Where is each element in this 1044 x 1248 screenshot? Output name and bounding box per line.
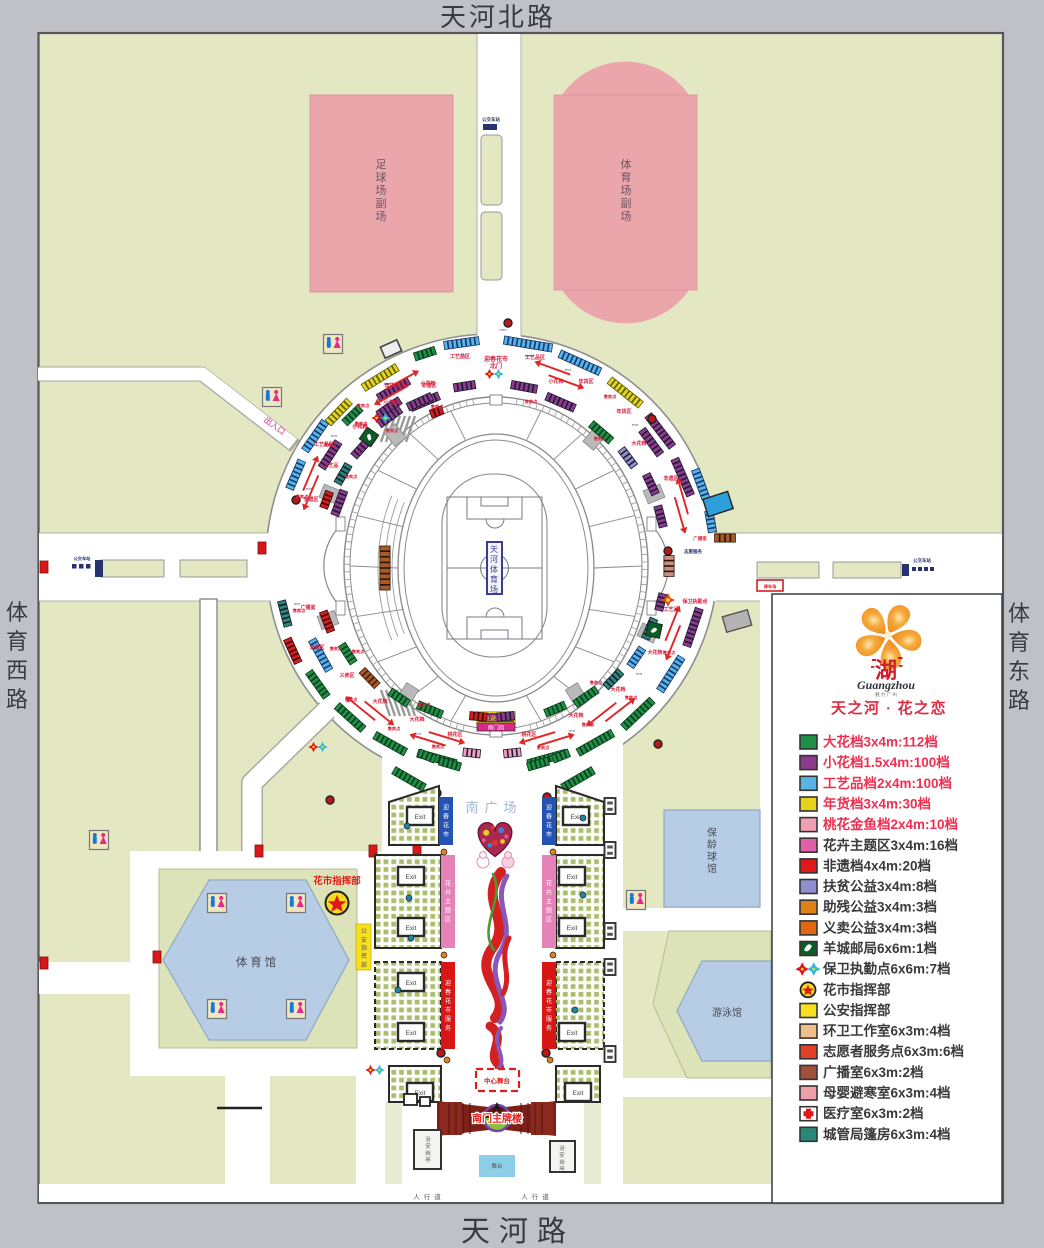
svg-text:体: 体 <box>621 157 632 171</box>
svg-text:亭: 亭 <box>425 1156 431 1164</box>
svg-text:售卖点: 售卖点 <box>590 679 603 686</box>
svg-text:路: 路 <box>1008 688 1030 713</box>
svg-text:大花档: 大花档 <box>647 649 662 656</box>
svg-text:大花档: 大花档 <box>610 686 625 693</box>
svg-text:花: 花 <box>546 997 552 1005</box>
svg-text:公交车站: 公交车站 <box>74 555 92 562</box>
svg-text:▪▪▪▪▪▪: ▪▪▪▪▪▪ <box>499 328 506 332</box>
svg-text:大花档: 大花档 <box>409 716 424 723</box>
svg-text:广播室6x3m:2档: 广播室6x3m:2档 <box>823 1064 924 1080</box>
svg-text:售卖点: 售卖点 <box>388 725 401 732</box>
svg-text:大花档: 大花档 <box>372 698 387 705</box>
svg-text:足: 足 <box>376 159 387 171</box>
svg-text:Exit: Exit <box>406 980 417 987</box>
svg-text:售卖点: 售卖点 <box>296 493 309 500</box>
svg-text:主: 主 <box>445 898 451 906</box>
svg-text:▪▪▪▪▪: ▪▪▪▪▪ <box>294 602 300 606</box>
svg-text:花: 花 <box>443 822 449 830</box>
svg-text:务: 务 <box>546 1024 552 1032</box>
svg-text:售卖点: 售卖点 <box>397 381 410 388</box>
svg-text:保: 保 <box>707 826 717 839</box>
svg-text:Exit: Exit <box>406 925 417 932</box>
svg-text:区: 区 <box>546 917 552 924</box>
svg-text:迎: 迎 <box>546 804 552 812</box>
svg-text:挥: 挥 <box>361 952 367 960</box>
svg-text:售卖点: 售卖点 <box>663 649 676 656</box>
svg-text:售卖点: 售卖点 <box>432 743 445 750</box>
svg-text:年货区: 年货区 <box>578 378 593 385</box>
svg-text:春: 春 <box>546 813 552 821</box>
svg-text:大花档3x4m:112档: 大花档3x4m:112档 <box>823 734 938 750</box>
svg-text:非遗区: 非遗区 <box>309 644 324 651</box>
svg-text:▪▪▪▪▪: ▪▪▪▪▪ <box>331 434 337 438</box>
svg-text:工艺品档2x4m:100档: 工艺品档2x4m:100档 <box>823 775 952 791</box>
svg-text:环卫工作室6x3m:4档: 环卫工作室6x3m:4档 <box>823 1023 951 1039</box>
svg-text:南广场: 南广场 <box>465 800 522 815</box>
svg-text:义卖公益3x4m:3档: 义卖公益3x4m:3档 <box>823 919 937 935</box>
svg-text:大花档: 大花档 <box>568 712 583 719</box>
svg-text:广播室: 广播室 <box>693 535 707 542</box>
svg-text:天: 天 <box>490 545 498 554</box>
svg-text:育: 育 <box>621 170 632 184</box>
svg-text:岗: 岗 <box>425 1150 431 1157</box>
svg-text:龄: 龄 <box>707 838 717 851</box>
svg-text:区: 区 <box>445 917 451 924</box>
svg-text:市: 市 <box>443 831 449 839</box>
svg-text:Guangzhou: Guangzhou <box>857 678 915 692</box>
svg-text:天河北路: 天河北路 <box>440 3 556 32</box>
svg-text:场: 场 <box>376 183 387 197</box>
svg-text:Exit: Exit <box>567 874 578 881</box>
svg-text:育: 育 <box>490 574 498 584</box>
svg-text:售卖点: 售卖点 <box>418 701 431 708</box>
svg-text:售卖点: 售卖点 <box>525 398 538 405</box>
svg-text:天河路: 天河路 <box>461 1215 575 1248</box>
svg-text:▪▪▪▪▪: ▪▪▪▪▪ <box>569 729 575 733</box>
svg-text:售卖点: 售卖点 <box>330 645 343 652</box>
svg-text:▪▪▪▪▪: ▪▪▪▪▪ <box>636 672 642 676</box>
svg-text:售卖点: 售卖点 <box>386 427 399 434</box>
svg-text:Exit: Exit <box>567 1030 578 1037</box>
svg-text:场: 场 <box>621 183 632 197</box>
svg-text:Exit: Exit <box>415 814 426 821</box>
svg-text:中心舞台: 中心舞台 <box>484 1076 511 1085</box>
svg-text:城管局篷房6x3m:4档: 城管局篷房6x3m:4档 <box>823 1126 951 1142</box>
svg-text:育: 育 <box>1008 630 1030 655</box>
svg-text:桃花区: 桃花区 <box>447 731 462 738</box>
svg-text:售卖点: 售卖点 <box>594 435 607 442</box>
svg-text:公: 公 <box>361 928 367 935</box>
svg-text:公交车站: 公交车站 <box>913 557 931 564</box>
svg-text:魅 力 广 州: 魅 力 广 州 <box>875 691 897 698</box>
svg-text:市: 市 <box>546 1006 552 1014</box>
svg-text:售卖点: 售卖点 <box>625 694 638 701</box>
svg-text:桃花区: 桃花区 <box>521 731 536 738</box>
svg-text:年货区: 年货区 <box>616 408 631 415</box>
svg-text:Exit: Exit <box>406 874 417 881</box>
svg-text:迎春花市: 迎春花市 <box>484 355 508 363</box>
svg-text:春: 春 <box>546 988 552 996</box>
svg-text:▪▪▪▪▪: ▪▪▪▪▪ <box>565 368 571 372</box>
svg-text:场: 场 <box>376 209 387 223</box>
svg-text:志愿者服务点6x3m:6档: 志愿者服务点6x3m:6档 <box>823 1043 964 1059</box>
svg-text:保卫执勤点6x6m:7档: 保卫执勤点6x6m:7档 <box>822 961 951 977</box>
svg-text:安: 安 <box>425 1142 431 1150</box>
svg-text:亭: 亭 <box>559 1165 565 1173</box>
svg-text:小花档: 小花档 <box>548 378 563 385</box>
svg-text:育: 育 <box>6 629 28 654</box>
svg-text:路: 路 <box>6 687 28 712</box>
svg-text:志愿服务: 志愿服务 <box>684 548 702 555</box>
svg-text:▪▪▪▪▪: ▪▪▪▪▪ <box>306 487 312 491</box>
svg-text:安: 安 <box>361 936 367 944</box>
svg-text:南门主牌楼: 南门主牌楼 <box>472 1112 522 1125</box>
svg-text:母婴避寒室6x3m:4档: 母婴避寒室6x3m:4档 <box>823 1085 951 1101</box>
svg-text:指: 指 <box>361 944 367 952</box>
svg-text:卉: 卉 <box>546 889 552 897</box>
svg-text:工艺品: 工艺品 <box>663 606 678 613</box>
svg-text:售卖点: 售卖点 <box>324 441 337 448</box>
svg-text:春: 春 <box>443 813 449 821</box>
svg-text:体 育 馆: 体 育 馆 <box>236 955 276 969</box>
svg-text:售卖点: 售卖点 <box>293 607 306 614</box>
svg-text:售卖点: 售卖点 <box>357 402 370 409</box>
svg-text:助残公益3x4m:3档: 助残公益3x4m:3档 <box>823 899 937 915</box>
svg-text:题: 题 <box>546 908 552 915</box>
svg-text:售卖点: 售卖点 <box>431 403 444 410</box>
svg-text:球: 球 <box>376 170 387 184</box>
svg-text:售卖点: 售卖点 <box>345 696 358 703</box>
svg-text:▪▪▪▪▪: ▪▪▪▪▪ <box>460 353 466 357</box>
svg-text:治: 治 <box>559 1144 565 1152</box>
svg-text:小花档1.5x4m:100档: 小花档1.5x4m:100档 <box>823 754 950 770</box>
svg-text:题: 题 <box>445 908 451 915</box>
svg-text:春: 春 <box>445 988 451 996</box>
svg-text:花卉主题区3x4m:16档: 花卉主题区3x4m:16档 <box>823 837 958 853</box>
svg-text:体: 体 <box>6 600 28 625</box>
svg-text:售卖点: 售卖点 <box>352 648 365 655</box>
svg-text:花: 花 <box>445 880 451 888</box>
svg-text:体: 体 <box>1008 601 1030 626</box>
svg-text:年货档3x4m:30档: 年货档3x4m:30档 <box>823 796 931 812</box>
svg-text:北门: 北门 <box>490 362 502 370</box>
svg-text:人行道: 人行道 <box>521 1192 553 1201</box>
svg-text:人行道: 人行道 <box>413 1192 445 1201</box>
svg-text:售卖点: 售卖点 <box>582 721 595 728</box>
svg-text:副: 副 <box>621 197 632 210</box>
svg-text:Exit: Exit <box>573 1090 584 1097</box>
svg-text:市: 市 <box>546 831 552 839</box>
svg-text:售卖点: 售卖点 <box>345 473 358 480</box>
svg-text:非遗档4x4m:20档: 非遗档4x4m:20档 <box>823 857 931 873</box>
svg-text:服: 服 <box>445 1016 451 1023</box>
svg-text:卉: 卉 <box>445 889 451 897</box>
svg-text:公安指挥部: 公安指挥部 <box>823 1002 891 1018</box>
svg-text:治: 治 <box>425 1135 431 1143</box>
svg-text:迎: 迎 <box>546 979 552 987</box>
svg-text:Exit: Exit <box>567 925 578 932</box>
svg-text:岗: 岗 <box>559 1159 565 1166</box>
svg-text:非遗区: 非遗区 <box>421 382 436 389</box>
svg-text:体: 体 <box>490 564 498 574</box>
svg-text:Exit: Exit <box>406 1030 417 1037</box>
svg-text:花: 花 <box>546 822 552 830</box>
svg-text:花市指挥部: 花市指挥部 <box>823 981 891 997</box>
svg-text:▪▪▪▪▪: ▪▪▪▪▪ <box>384 382 390 386</box>
svg-text:小花档: 小花档 <box>383 399 398 406</box>
svg-text:馆: 馆 <box>707 862 717 875</box>
svg-text:场: 场 <box>621 209 632 223</box>
svg-text:安: 安 <box>559 1151 565 1159</box>
svg-text:售卖点: 售卖点 <box>355 420 368 427</box>
svg-text:市: 市 <box>445 1006 451 1014</box>
svg-text:花: 花 <box>445 997 451 1005</box>
svg-text:花市指挥部: 花市指挥部 <box>313 875 361 887</box>
svg-text:▪▪▪▪▪: ▪▪▪▪▪ <box>354 412 360 416</box>
svg-text:务: 务 <box>445 1024 451 1032</box>
svg-text:南门岗: 南门岗 <box>488 724 505 732</box>
svg-text:舞台: 舞台 <box>491 1162 503 1170</box>
svg-text:球: 球 <box>707 850 717 863</box>
svg-text:售卖点: 售卖点 <box>537 744 550 751</box>
svg-text:服: 服 <box>546 1016 552 1023</box>
svg-text:花: 花 <box>546 880 552 888</box>
svg-text:东: 东 <box>1008 659 1030 684</box>
svg-text:售卖点: 售卖点 <box>604 393 617 400</box>
svg-text:非遗区: 非遗区 <box>663 475 678 482</box>
svg-text:▪▪▪▪▪: ▪▪▪▪▪ <box>525 354 531 358</box>
svg-text:羊城邮局6x6m:1档: 羊城邮局6x6m:1档 <box>823 940 937 956</box>
svg-text:场: 场 <box>490 585 498 594</box>
svg-text:主: 主 <box>546 898 552 906</box>
svg-text:医疗室6x3m:2档: 医疗室6x3m:2档 <box>823 1105 924 1121</box>
svg-text:义卖区: 义卖区 <box>338 672 354 679</box>
svg-text:公交车站: 公交车站 <box>482 116 500 123</box>
svg-text:扶贫公益3x4m:8档: 扶贫公益3x4m:8档 <box>823 878 937 894</box>
svg-text:保卫执勤点: 保卫执勤点 <box>681 598 707 605</box>
svg-text:副: 副 <box>376 197 387 210</box>
svg-text:停车场: 停车场 <box>764 583 777 590</box>
svg-text:▪▪▪▪▪: ▪▪▪▪▪ <box>415 732 421 736</box>
svg-text:大花档: 大花档 <box>631 440 646 447</box>
svg-text:游泳馆: 游泳馆 <box>712 1006 742 1019</box>
svg-text:迎: 迎 <box>445 979 451 987</box>
svg-text:河: 河 <box>490 554 498 564</box>
svg-text:西: 西 <box>6 658 28 683</box>
svg-text:迎: 迎 <box>443 804 449 812</box>
svg-text:▪▪▪▪▪: ▪▪▪▪▪ <box>632 423 638 427</box>
svg-text:部: 部 <box>361 961 367 969</box>
svg-text:桃花金鱼档2x4m:10档: 桃花金鱼档2x4m:10档 <box>823 816 958 832</box>
svg-text:工艺品: 工艺品 <box>323 462 338 469</box>
svg-text:天之河 · 花之恋: 天之河 · 花之恋 <box>831 699 947 717</box>
